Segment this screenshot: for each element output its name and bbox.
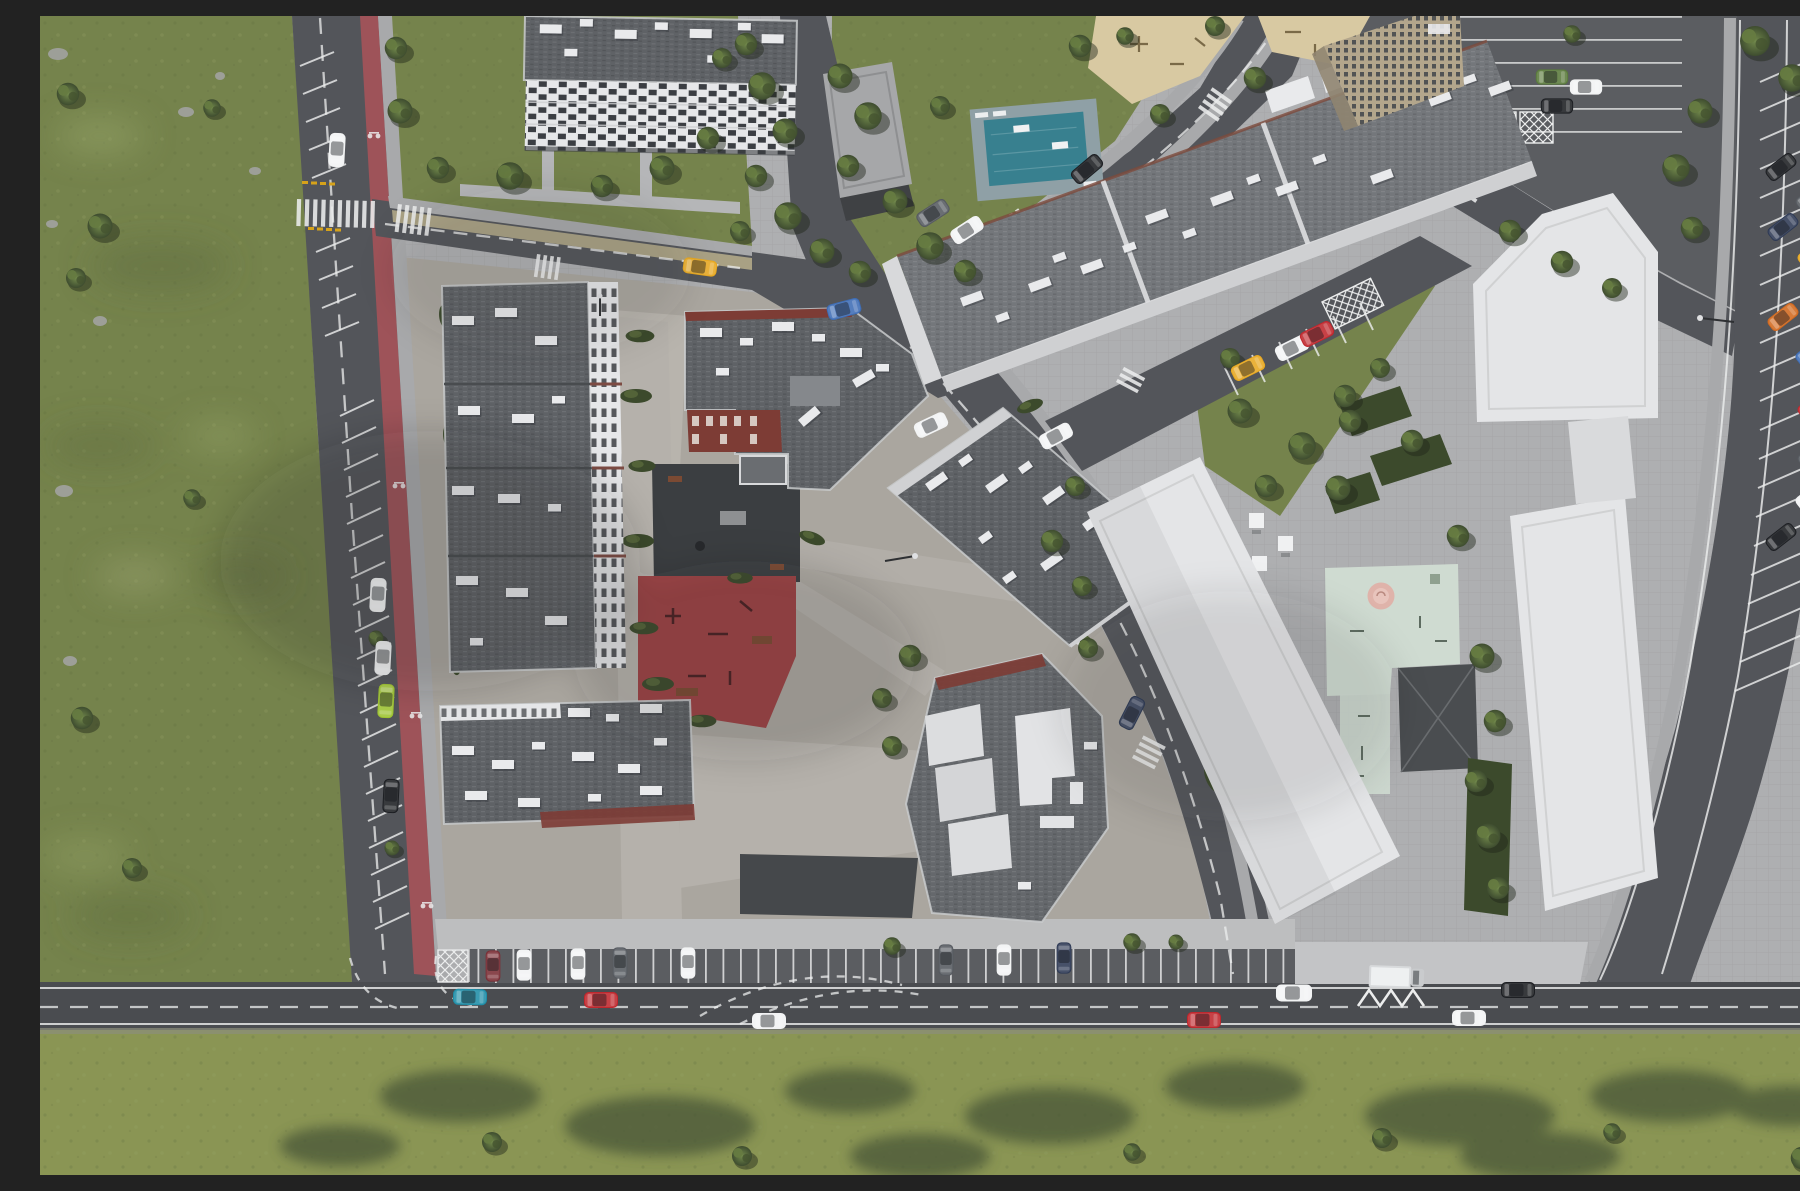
car <box>453 989 487 1006</box>
car <box>382 779 400 814</box>
car <box>328 133 346 168</box>
car <box>1187 1012 1221 1028</box>
car <box>1536 69 1568 84</box>
car <box>681 947 696 978</box>
car <box>1276 985 1312 1002</box>
link-building <box>1568 416 1636 504</box>
lawn-path-2 <box>640 149 652 201</box>
car <box>997 944 1012 975</box>
pink-carousel <box>1368 583 1395 610</box>
car <box>517 949 532 980</box>
car <box>486 950 501 981</box>
south-plaza <box>435 919 1295 949</box>
scene-canvas <box>40 16 1800 1175</box>
car <box>571 948 586 979</box>
car <box>584 992 618 1008</box>
car <box>1501 982 1535 998</box>
car <box>1452 1010 1486 1026</box>
shaded-paving <box>740 854 918 918</box>
car <box>1057 942 1072 973</box>
car <box>752 1013 786 1029</box>
car <box>939 944 954 975</box>
car <box>1541 98 1573 113</box>
pool-area <box>970 98 1105 201</box>
car <box>1570 79 1602 94</box>
bottom-meadow <box>40 1030 1800 1175</box>
south-shoulder <box>40 1028 1800 1034</box>
south-white-plaza <box>1295 942 1588 984</box>
car <box>613 947 628 978</box>
aerial-render <box>40 16 1800 1175</box>
